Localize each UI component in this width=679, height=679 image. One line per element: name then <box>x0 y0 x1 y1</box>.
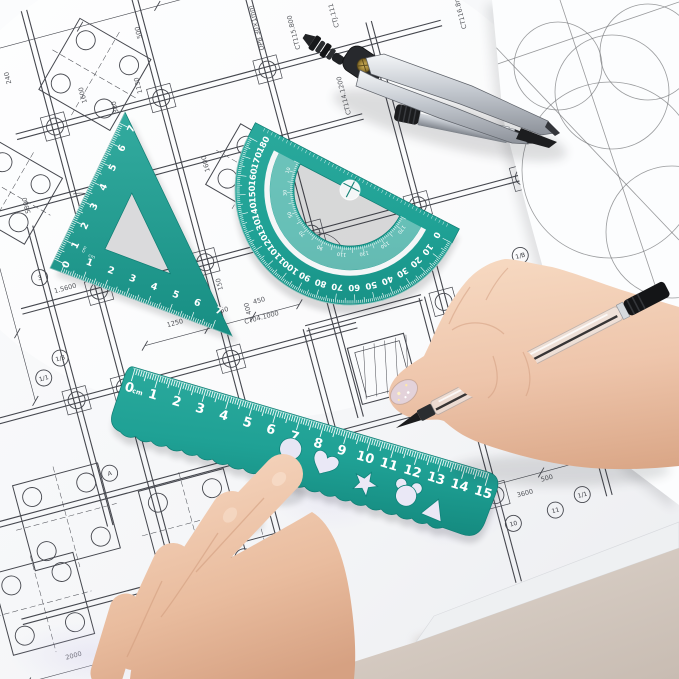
left-pinky-finger <box>107 610 126 673</box>
photo-canvas: 1600113038050024058001.5600125012504501.… <box>0 0 679 679</box>
label: 70 <box>331 280 344 291</box>
drafting-tools-photo: 1600113038050024058001.5600125012504501.… <box>0 0 679 679</box>
label: 60 <box>348 282 360 293</box>
label: 110 <box>337 250 347 257</box>
label: 30 <box>282 190 288 196</box>
label: 150 <box>248 185 259 203</box>
